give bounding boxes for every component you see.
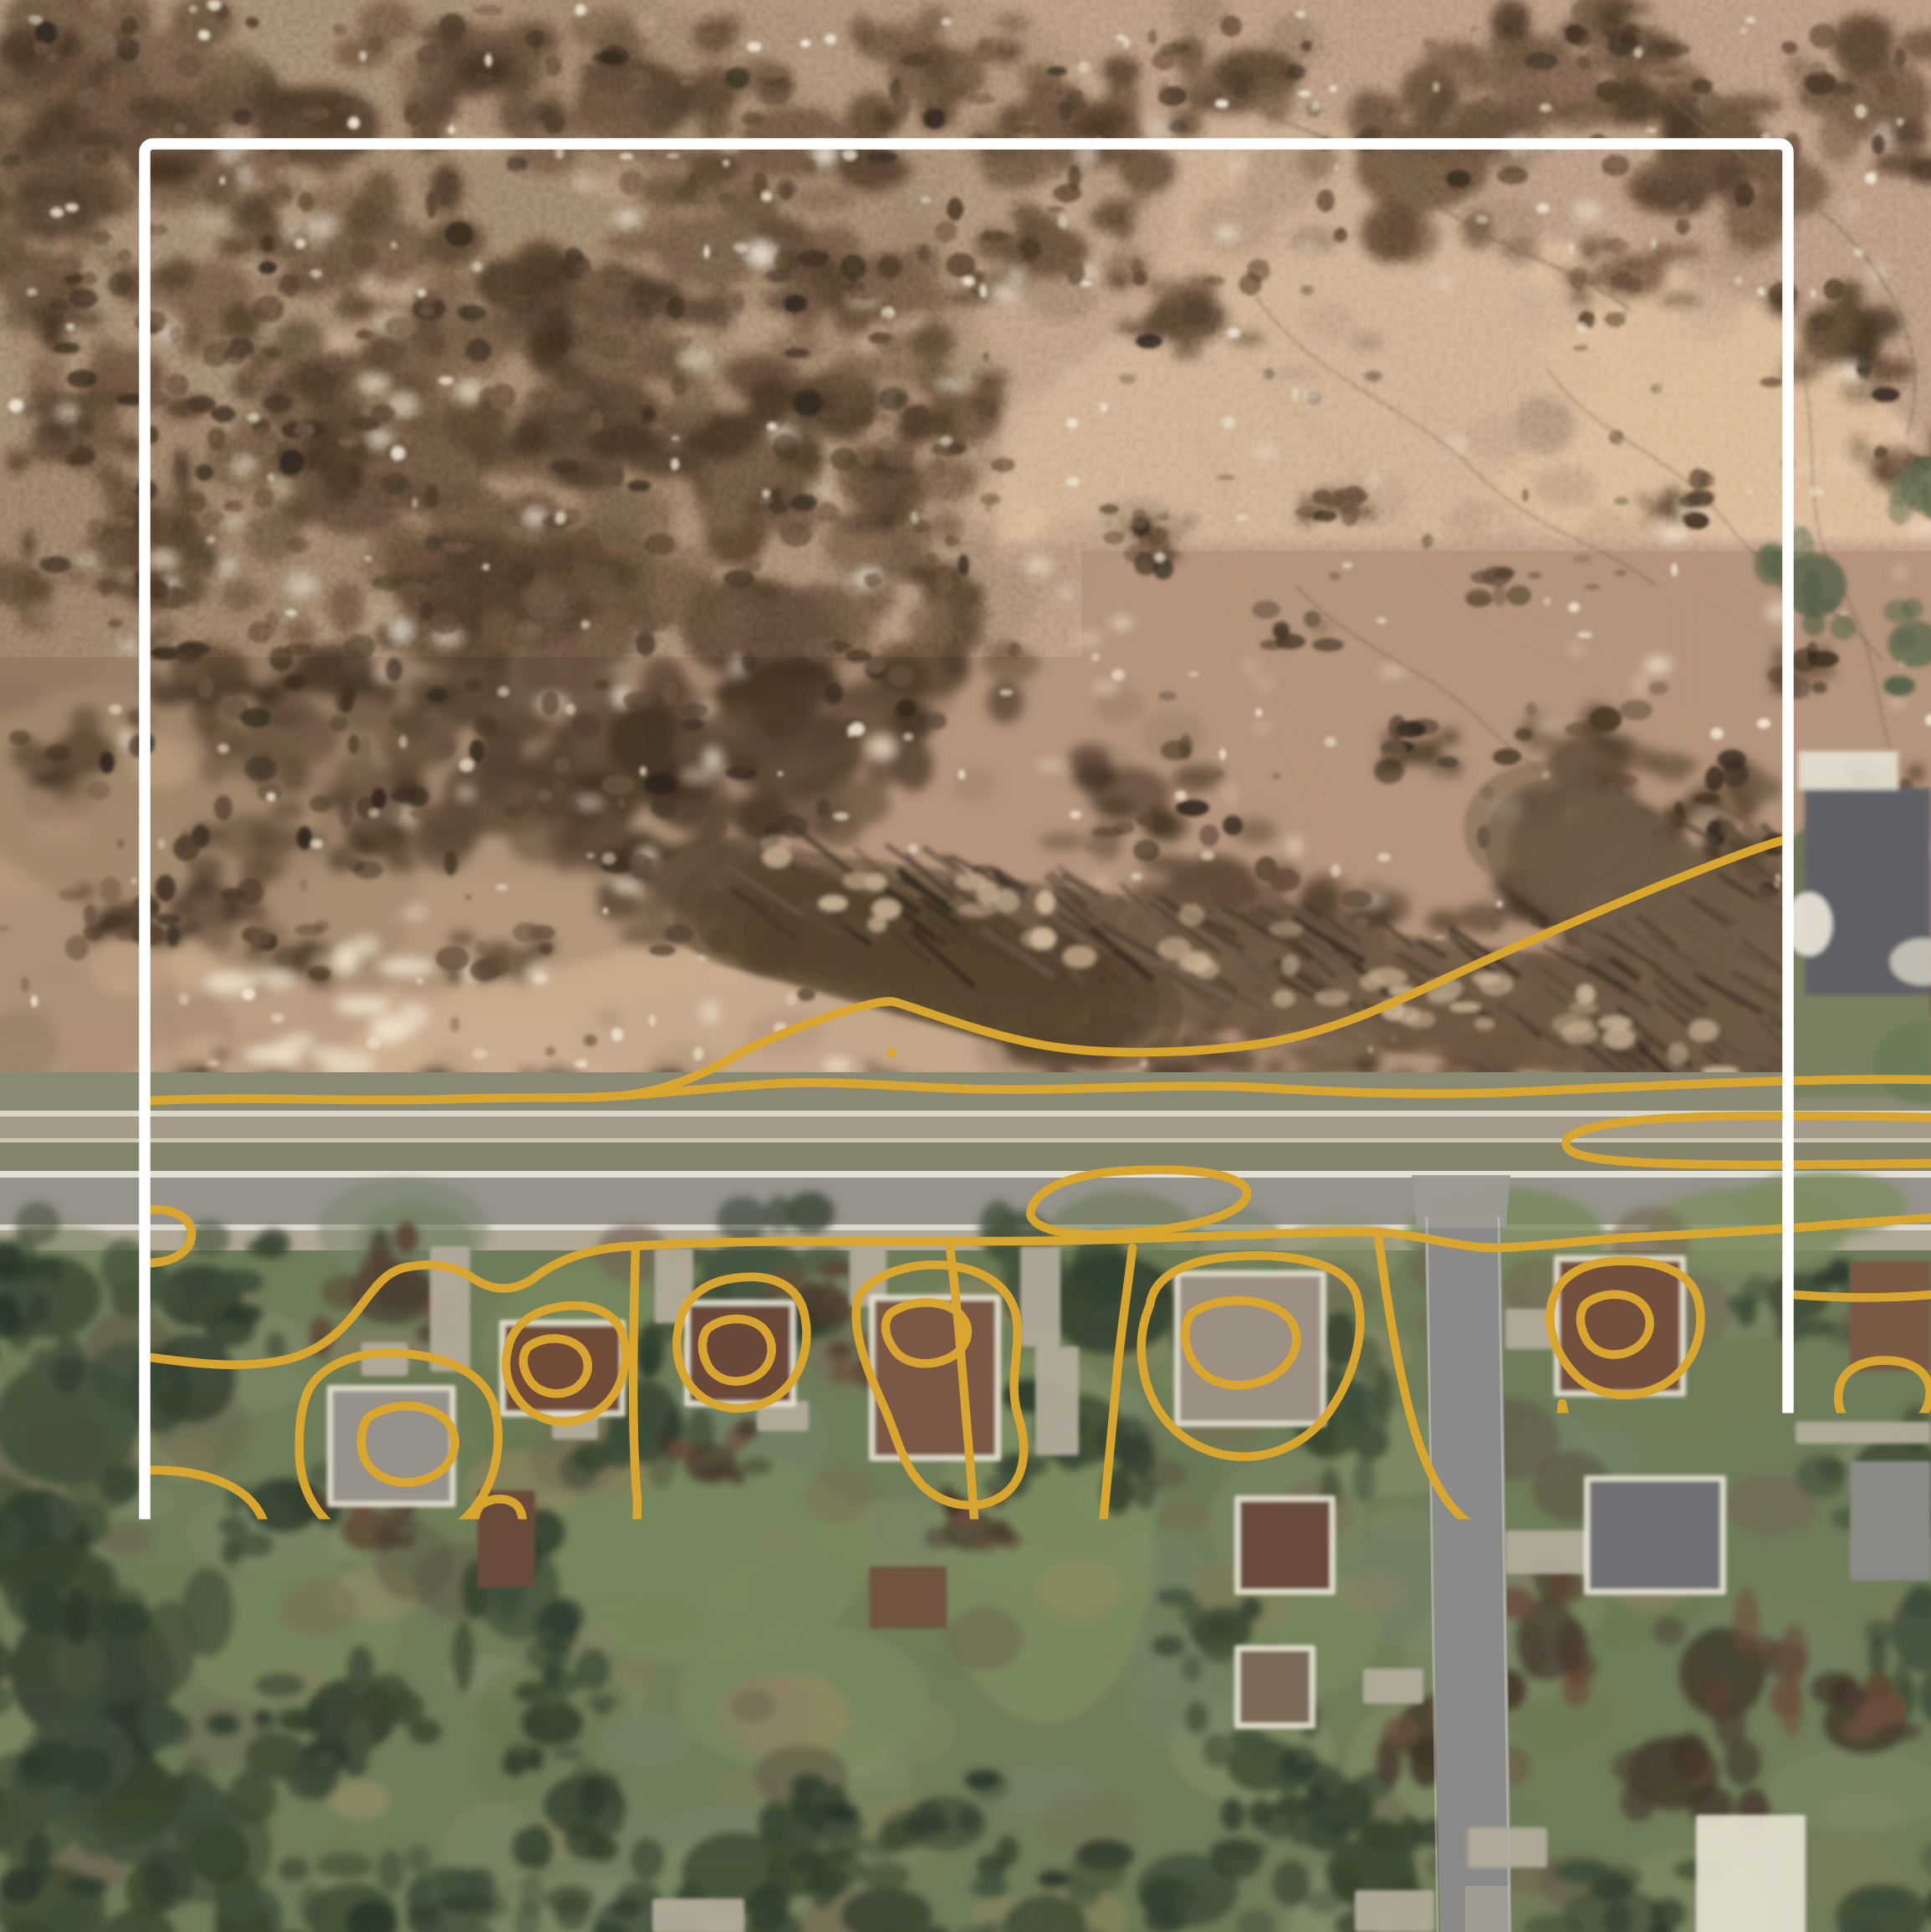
- svg-text:Google: Google: [22, 1860, 199, 1924]
- svg-text:Imagery ©2025 Airbus, CNES / A: Imagery ©2025 Airbus, CNES / Airbus, Max…: [996, 1889, 1930, 1928]
